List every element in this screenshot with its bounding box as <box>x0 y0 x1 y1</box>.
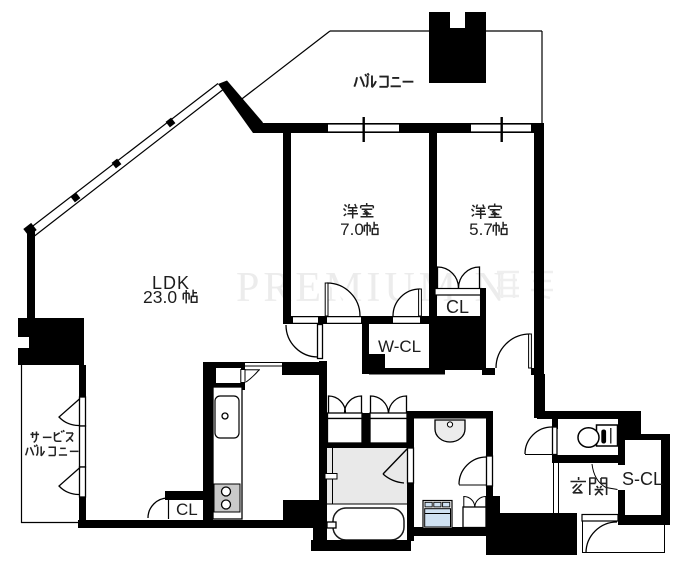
svg-text:5.7: 5.7 <box>469 220 493 239</box>
svg-text:S-CL: S-CL <box>622 469 663 489</box>
svg-text:CL: CL <box>176 500 198 519</box>
svg-text:CL: CL <box>446 297 469 317</box>
svg-text:23.0: 23.0 <box>143 287 177 307</box>
svg-text:7.0: 7.0 <box>340 220 364 239</box>
svg-text:W-CL: W-CL <box>378 337 421 356</box>
